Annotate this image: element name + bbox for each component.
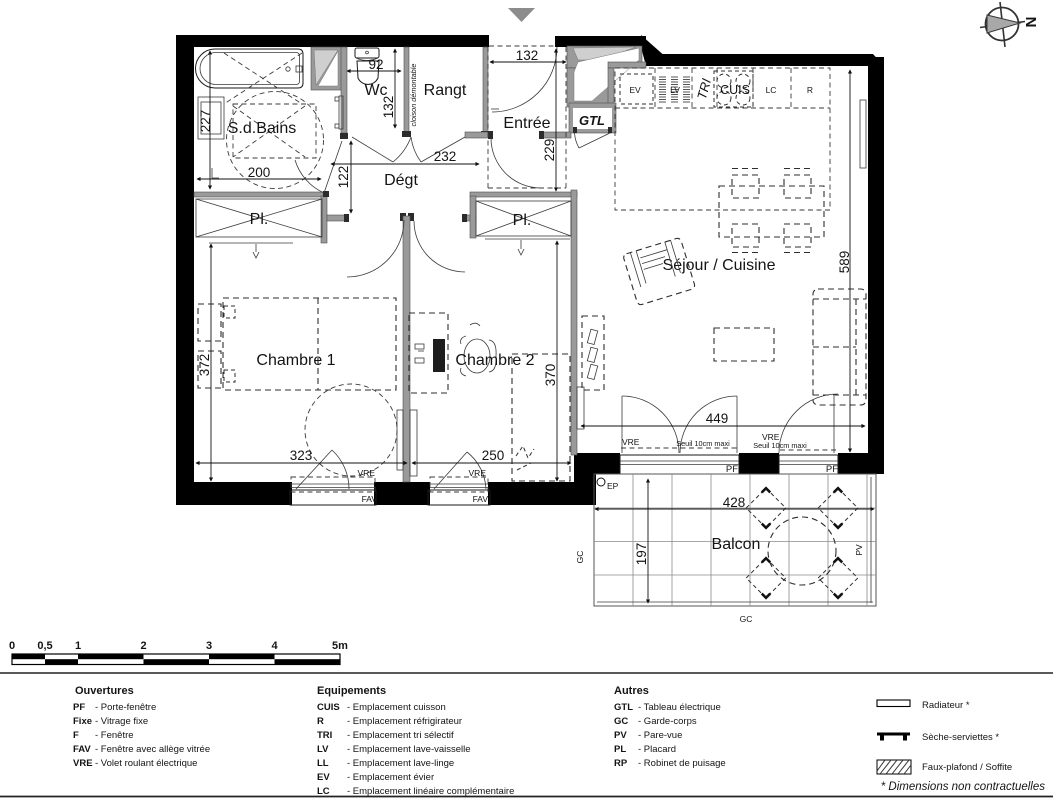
svg-text:LC: LC: [317, 786, 330, 797]
svg-text:227: 227: [198, 110, 213, 133]
svg-text:Equipements: Equipements: [317, 685, 386, 697]
svg-text:Pl.: Pl.: [513, 212, 532, 229]
svg-text:Balcon: Balcon: [712, 536, 761, 553]
svg-text:Sèche-serviettes *: Sèche-serviettes *: [922, 732, 999, 743]
svg-text:1: 1: [75, 640, 81, 652]
svg-text:TRI: TRI: [317, 730, 332, 741]
svg-text:R: R: [807, 85, 813, 95]
svg-text:- Porte-fenêtre: - Porte-fenêtre: [95, 702, 156, 713]
svg-text:LC: LC: [766, 85, 777, 95]
svg-text:4: 4: [271, 640, 278, 652]
svg-text:589: 589: [837, 251, 852, 274]
svg-text:370: 370: [543, 364, 558, 387]
svg-text:132: 132: [381, 96, 396, 119]
svg-text:- Fenêtre avec allège vitrée: - Fenêtre avec allège vitrée: [95, 744, 210, 755]
svg-text:EP: EP: [607, 481, 619, 491]
svg-text:PV: PV: [614, 730, 627, 741]
svg-text:- Robinet de puisage: - Robinet de puisage: [638, 758, 726, 769]
svg-text:Fixe: Fixe: [73, 716, 92, 727]
svg-text:232: 232: [434, 149, 457, 164]
svg-text:- Garde-corps: - Garde-corps: [638, 716, 697, 727]
svg-text:Radiateur *: Radiateur *: [922, 700, 970, 711]
svg-text:Séjour / Cuisine: Séjour / Cuisine: [663, 257, 776, 274]
svg-text:Seuil 10cm maxi: Seuil 10cm maxi: [676, 439, 730, 448]
svg-text:Seuil 10cm maxi: Seuil 10cm maxi: [753, 441, 807, 450]
svg-text:- Emplacement tri sélectif: - Emplacement tri sélectif: [347, 730, 454, 741]
svg-text:GTL: GTL: [579, 113, 605, 128]
svg-text:- Tableau électrique: - Tableau électrique: [638, 702, 721, 713]
svg-text:VRE: VRE: [469, 468, 487, 478]
svg-text:- Placard: - Placard: [638, 744, 676, 755]
svg-text:FAV: FAV: [73, 744, 91, 755]
svg-text:LL: LL: [317, 758, 329, 769]
svg-text:* Dimensions non contractuelle: * Dimensions non contractuelles: [881, 781, 1046, 793]
svg-text:372: 372: [197, 354, 212, 377]
svg-text:197: 197: [634, 543, 649, 566]
svg-text:N: N: [1022, 17, 1039, 28]
svg-text:F: F: [73, 730, 79, 741]
svg-text:Dégt: Dégt: [384, 172, 418, 189]
svg-text:Autres: Autres: [614, 685, 649, 697]
svg-text:VRE: VRE: [358, 468, 376, 478]
svg-text:Rangt: Rangt: [424, 82, 467, 99]
svg-text:- Emplacement lave-linge: - Emplacement lave-linge: [347, 758, 454, 769]
svg-text:449: 449: [706, 411, 729, 426]
svg-text:FAV: FAV: [362, 494, 378, 504]
svg-text:132: 132: [516, 48, 539, 63]
svg-text:GC: GC: [575, 551, 585, 564]
svg-text:250: 250: [482, 448, 505, 463]
svg-text:0,5: 0,5: [37, 640, 52, 652]
svg-text:- Emplacement linéaire complém: - Emplacement linéaire complémentaire: [347, 786, 514, 797]
svg-text:200: 200: [248, 165, 271, 180]
svg-text:122: 122: [336, 166, 351, 189]
svg-text:S.d.Bains: S.d.Bains: [228, 120, 296, 137]
svg-text:92: 92: [368, 57, 383, 72]
svg-text:Pl.: Pl.: [250, 211, 269, 228]
svg-text:5m: 5m: [332, 640, 348, 652]
svg-text:PL: PL: [614, 744, 626, 755]
svg-text:LV: LV: [317, 744, 329, 755]
svg-text:229: 229: [542, 139, 557, 162]
svg-text:428: 428: [723, 495, 746, 510]
svg-text:R: R: [317, 716, 324, 727]
svg-text:Faux-plafond / Soffite: Faux-plafond / Soffite: [922, 762, 1012, 773]
svg-text:VRE: VRE: [622, 437, 640, 447]
svg-text:GC: GC: [740, 614, 753, 624]
svg-text:- Pare-vue: - Pare-vue: [638, 730, 682, 741]
svg-text:323: 323: [290, 448, 313, 463]
svg-text:PV: PV: [854, 544, 864, 556]
svg-text:Chambre 1: Chambre 1: [256, 352, 335, 369]
svg-text:GC: GC: [614, 716, 628, 727]
svg-text:EV: EV: [629, 85, 641, 95]
svg-text:VRE: VRE: [73, 758, 93, 769]
svg-text:CUIS: CUIS: [720, 83, 750, 97]
svg-text:LV: LV: [670, 85, 680, 95]
svg-text:PF: PF: [826, 464, 838, 475]
svg-text:- Emplacement évier: - Emplacement évier: [347, 772, 434, 783]
svg-text:- Volet roulant électrique: - Volet roulant électrique: [95, 758, 197, 769]
svg-text:FAV: FAV: [473, 494, 489, 504]
svg-text:0: 0: [9, 640, 15, 652]
svg-text:cloison démontable: cloison démontable: [409, 64, 418, 127]
svg-text:- Emplacement lave-vaisselle: - Emplacement lave-vaisselle: [347, 744, 471, 755]
svg-text:- Emplacement réfrigirateur: - Emplacement réfrigirateur: [347, 716, 462, 727]
svg-text:GTL: GTL: [614, 702, 633, 713]
svg-text:CUIS: CUIS: [317, 702, 340, 713]
svg-text:3: 3: [206, 640, 212, 652]
svg-text:- Vitrage fixe: - Vitrage fixe: [95, 716, 148, 727]
svg-text:- Emplacement cuisson: - Emplacement cuisson: [347, 702, 446, 713]
svg-text:2: 2: [140, 640, 146, 652]
svg-text:Entrée: Entrée: [503, 115, 550, 132]
svg-text:PF: PF: [726, 464, 738, 475]
svg-text:PF: PF: [73, 702, 85, 713]
svg-text:Ouvertures: Ouvertures: [75, 685, 134, 697]
svg-text:- Fenêtre: - Fenêtre: [95, 730, 134, 741]
svg-text:RP: RP: [614, 758, 628, 769]
svg-text:EV: EV: [317, 772, 330, 783]
